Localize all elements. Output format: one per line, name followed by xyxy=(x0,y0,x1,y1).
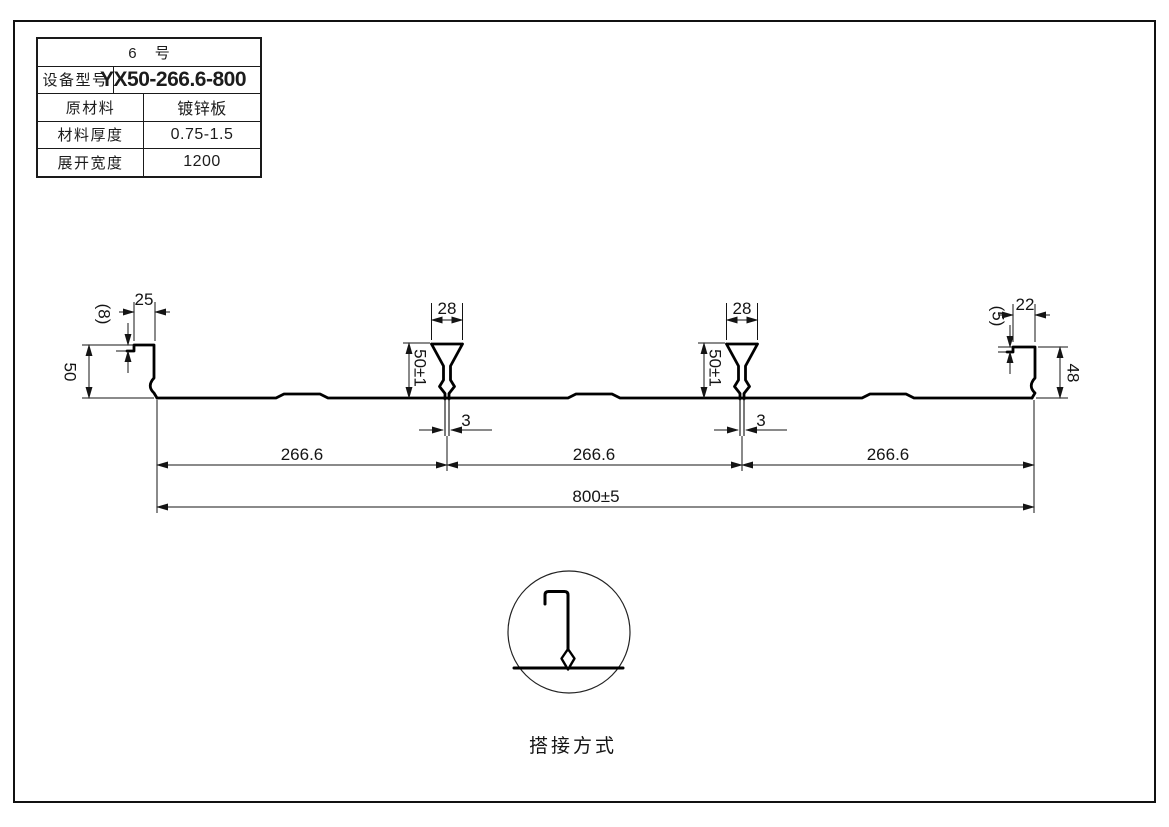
dim-left-height: 50 xyxy=(61,363,80,382)
dim-rib1-height: 50±1 xyxy=(411,349,430,387)
dim-pitch-2: 266.6 xyxy=(573,445,616,464)
rib-2-stem xyxy=(740,399,744,436)
profile-drawing: (8) 25 50 28 50±1 3 28 50±1 3 (5) 22 48 … xyxy=(0,0,1169,827)
drawing-sheet: 6 号 设备型号 YX50-266.6-800 原材料 镀锌板 材料厚度 0.7… xyxy=(0,0,1169,827)
profile-rib-2 xyxy=(727,344,758,399)
profile-bottom-flat xyxy=(157,394,1032,398)
dim-right-lip: (5) xyxy=(989,306,1008,327)
dim-pitch-1: 266.6 xyxy=(281,445,324,464)
profile-left-edge xyxy=(127,345,157,398)
profile-right-edge xyxy=(1007,347,1035,398)
lap-female-diamond xyxy=(562,649,575,670)
dim-left-lip: (8) xyxy=(95,304,114,325)
dim-overall: 800±5 xyxy=(572,487,619,506)
lap-male-hook xyxy=(545,592,568,651)
dim-rib1-top: 28 xyxy=(438,299,457,318)
lap-detail-caption: 搭接方式 xyxy=(529,735,617,757)
profile-outline xyxy=(127,344,1035,399)
dim-rib2-top: 28 xyxy=(733,299,752,318)
dim-pitch-3: 266.6 xyxy=(867,445,910,464)
dim-right-height: 48 xyxy=(1064,364,1083,383)
dim-right-top: 22 xyxy=(1016,295,1035,314)
dim-rib1-slot: 3 xyxy=(461,411,470,430)
lap-joint-detail: 搭接方式 xyxy=(508,571,630,757)
dim-rib2-height: 50±1 xyxy=(706,349,725,387)
profile-rib-1 xyxy=(432,344,463,399)
dim-rib2-slot: 3 xyxy=(756,411,765,430)
rib-1-stem xyxy=(445,399,449,436)
dim-left-top: 25 xyxy=(135,290,154,309)
dimension-lines xyxy=(82,302,1068,513)
